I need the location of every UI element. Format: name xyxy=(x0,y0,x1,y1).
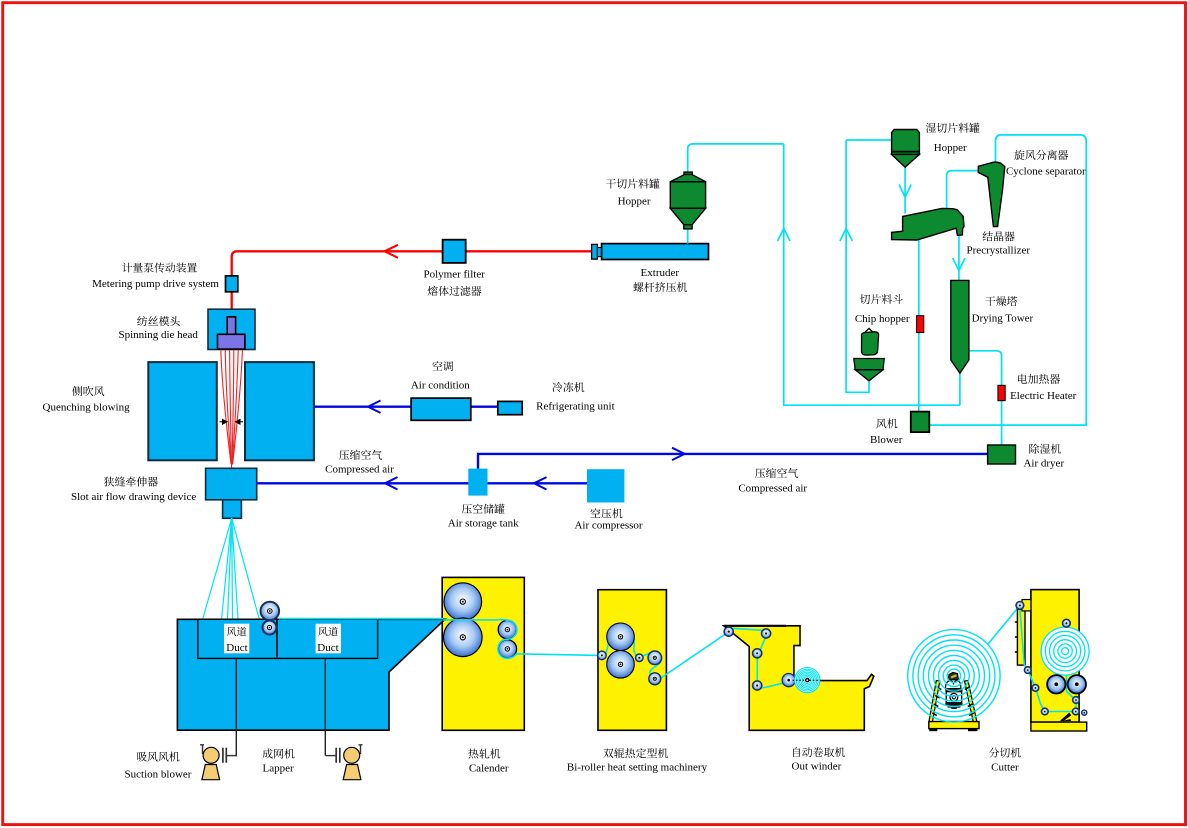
svg-text:Duct: Duct xyxy=(226,642,247,654)
svg-text:Precrystallizer: Precrystallizer xyxy=(967,244,1031,256)
svg-text:Blower: Blower xyxy=(870,434,903,446)
svg-text:Air dryer: Air dryer xyxy=(1023,458,1064,470)
svg-text:Extruder: Extruder xyxy=(641,267,680,279)
svg-text:Air storage tank: Air storage tank xyxy=(448,517,519,529)
svg-text:Hopper: Hopper xyxy=(934,142,967,154)
svg-text:Refrigerating unit: Refrigerating unit xyxy=(536,401,615,413)
svg-text:Air condition: Air condition xyxy=(411,380,470,392)
svg-text:Drying Tower: Drying Tower xyxy=(972,313,1034,325)
svg-text:Cutter: Cutter xyxy=(991,762,1019,774)
svg-text:Cyclone separator: Cyclone separator xyxy=(1006,165,1086,177)
svg-text:Compressed air: Compressed air xyxy=(325,463,394,475)
svg-text:Air compressor: Air compressor xyxy=(574,520,642,532)
svg-text:Electric Heater: Electric Heater xyxy=(1010,390,1077,402)
svg-text:Out winder: Out winder xyxy=(792,761,842,773)
svg-text:Chip hopper: Chip hopper xyxy=(855,313,910,325)
svg-text:Hopper: Hopper xyxy=(618,196,651,208)
svg-text:Quenching blowing: Quenching blowing xyxy=(43,401,131,413)
svg-text:Suction blower: Suction blower xyxy=(125,769,192,781)
svg-text:Spinning die head: Spinning die head xyxy=(118,329,198,341)
svg-text:Slot air flow drawing device: Slot air flow drawing device xyxy=(71,491,196,503)
svg-text:Duct: Duct xyxy=(317,642,338,654)
svg-text:Bi-roller heat setting machine: Bi-roller heat setting machinery xyxy=(567,762,708,774)
svg-text:Calender: Calender xyxy=(469,763,509,775)
svg-text:Compressed air: Compressed air xyxy=(738,482,807,494)
svg-text:Metering pump drive system: Metering pump drive system xyxy=(92,278,219,290)
svg-text:Lapper: Lapper xyxy=(263,763,294,775)
svg-text:Polymer filter: Polymer filter xyxy=(423,268,485,280)
